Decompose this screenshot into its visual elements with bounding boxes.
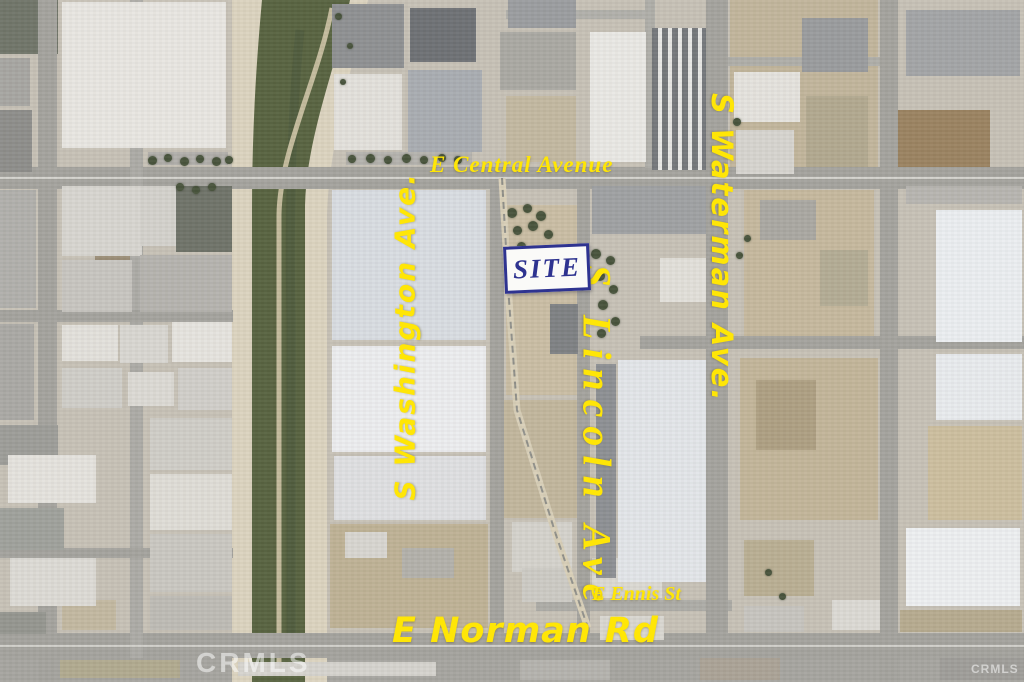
- crmls-watermark-right: CRMLS: [971, 662, 1019, 676]
- street-label-lincoln-ave: S Lincoln Ave: [574, 233, 621, 643]
- street-label-waterman-ave: S Waterman Ave.: [705, 93, 739, 365]
- image-grain-overlay: [0, 0, 1024, 682]
- street-label-washington-ave: S Washington Ave.: [389, 201, 422, 501]
- street-label-ennis-st: E Ennis St: [592, 583, 681, 606]
- crmls-watermark-left: CRMLS: [196, 647, 311, 679]
- site-callout-label: SITE: [512, 252, 581, 286]
- street-label-central-avenue: E Central Avenue: [430, 152, 613, 178]
- site-callout-box: SITE: [503, 243, 591, 294]
- satellite-map: E Central Avenue S Washington Ave. S Lin…: [0, 0, 1024, 682]
- street-label-norman-rd: E Norman Rd: [392, 611, 659, 651]
